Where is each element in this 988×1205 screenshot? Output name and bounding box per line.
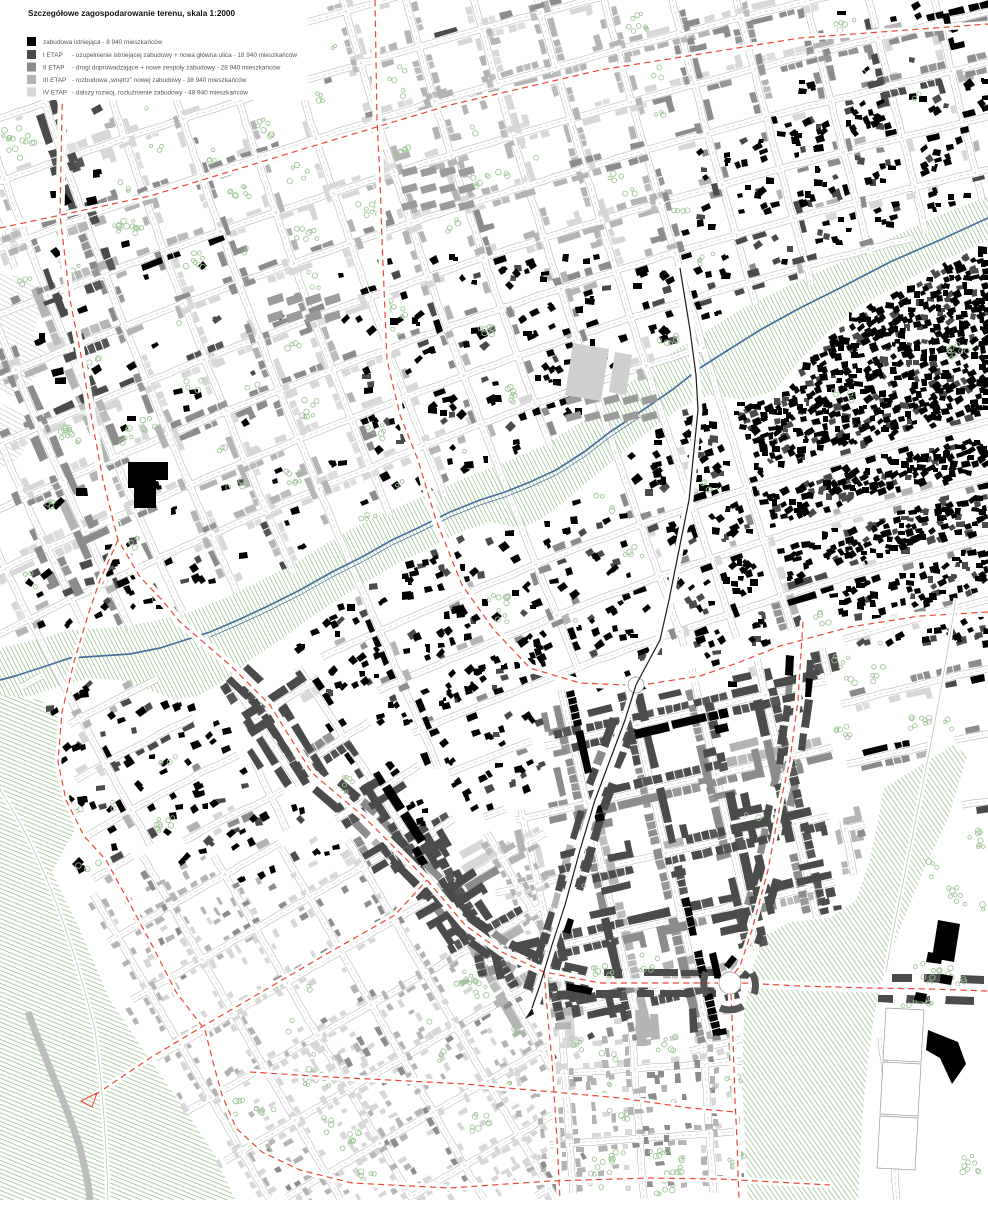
svg-text:III ETAP: III ETAP [43, 77, 66, 84]
svg-text:Szczegółowe zagospodarowanie t: Szczegółowe zagospodarowanie terenu, ska… [28, 9, 235, 18]
svg-text:I ETAP: I ETAP [43, 52, 63, 59]
svg-text:IV ETAP: IV ETAP [43, 90, 67, 97]
svg-text:zabudowa istniejąca - 8 940 mi: zabudowa istniejąca - 8 940 mieszkańców [43, 39, 163, 46]
svg-text:- dalszy rozwój, rozluźnienie: - dalszy rozwój, rozluźnienie zabudowy -… [72, 90, 248, 97]
svg-text:II ETAP: II ETAP [43, 65, 65, 72]
svg-text:- rozbudowa „wnętrz” nowej zab: - rozbudowa „wnętrz” nowej zabudowy - 38… [72, 77, 247, 84]
svg-text:- uzupełnienie istniejącej zab: - uzupełnienie istniejącej zabudowy + no… [72, 52, 297, 59]
svg-text:- drogi doprowadzające + nowe: - drogi doprowadzające + nowe zespoły za… [72, 65, 281, 72]
